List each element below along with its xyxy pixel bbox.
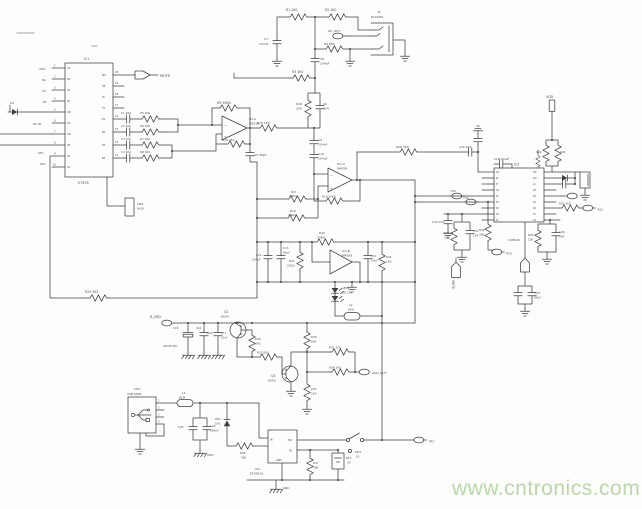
component-label: IN bbox=[496, 177, 499, 180]
component-label: + bbox=[330, 187, 333, 191]
component-label: 20K bbox=[296, 107, 303, 111]
component-label: 3 bbox=[54, 86, 56, 90]
resistor-r9 bbox=[218, 105, 238, 111]
component-label: D1 bbox=[10, 101, 14, 105]
component-label: R33 bbox=[311, 387, 317, 391]
component-label: 1 bbox=[158, 400, 160, 403]
component-label: C2 104 bbox=[121, 124, 131, 128]
net-flag-au-out bbox=[333, 33, 346, 39]
component-label: CP bbox=[67, 89, 71, 92]
cap-c18 bbox=[497, 160, 505, 168]
cap-top bbox=[474, 136, 482, 144]
component-label: C18 104uF bbox=[494, 157, 510, 161]
component-label: CS8645 bbox=[508, 238, 520, 242]
resistor-r16 bbox=[305, 98, 311, 118]
net-flag-left bbox=[564, 193, 577, 199]
component-label: C16 bbox=[196, 326, 201, 330]
ic1-body bbox=[65, 63, 113, 177]
resistor-r21 bbox=[297, 250, 303, 270]
resistor-r33 bbox=[304, 382, 310, 402]
resistor-r36 bbox=[234, 443, 254, 449]
component-label: R1 1K0 bbox=[286, 8, 297, 12]
component-label: C4 104 bbox=[121, 150, 131, 154]
component-label: IN bbox=[270, 439, 273, 442]
resistor-r20 bbox=[315, 239, 335, 245]
component-label: R26 bbox=[255, 337, 261, 341]
component-label: C10 bbox=[318, 152, 324, 156]
component-label: R20 bbox=[319, 231, 325, 235]
battery-bt1-icon bbox=[332, 453, 344, 469]
ground-icon bbox=[198, 352, 211, 359]
zener-zd1-icon bbox=[224, 420, 230, 427]
vdd-flag-icon bbox=[549, 100, 555, 112]
component-label: LED bbox=[38, 151, 43, 155]
component-label: 2 bbox=[54, 75, 56, 79]
component-label: ID bbox=[102, 96, 105, 99]
headphone-jack-icon bbox=[371, 23, 393, 55]
component-label: 100 bbox=[528, 238, 534, 242]
component-label: L2 bbox=[349, 303, 353, 307]
component-label: R30 bbox=[444, 231, 450, 235]
component-label: − bbox=[330, 174, 333, 178]
component-label: SW1 bbox=[355, 450, 362, 454]
component-label: R25 1K0 bbox=[559, 202, 571, 206]
component-label: R37 bbox=[313, 461, 319, 465]
resistor-r28 bbox=[398, 149, 418, 155]
component-label: IC3 bbox=[514, 163, 519, 167]
component-label: 104uF bbox=[318, 143, 328, 147]
component-label: KT bbox=[496, 195, 499, 198]
component-label: LN bbox=[496, 189, 499, 192]
cap-c5 bbox=[246, 150, 254, 158]
resistor-r23 bbox=[88, 295, 108, 301]
component-label: 7 bbox=[54, 130, 56, 134]
component-label: 60uF bbox=[283, 251, 290, 255]
component-label: GND bbox=[283, 486, 289, 490]
ground-up-icon bbox=[473, 126, 482, 134]
component-label: PS bbox=[496, 201, 499, 204]
component-label: 104uF bbox=[320, 62, 330, 66]
component-label: IN bbox=[43, 100, 46, 104]
component-label: C26 bbox=[559, 230, 565, 234]
cap-c25 bbox=[189, 424, 197, 432]
component-label: PX bbox=[496, 207, 499, 210]
component-label: D0 bbox=[533, 195, 537, 198]
mute-flag-icon bbox=[452, 262, 461, 278]
ground-icon bbox=[580, 192, 589, 200]
resistor-r31 bbox=[330, 349, 350, 355]
component-label: 15 bbox=[115, 127, 119, 131]
component-label: SW bbox=[533, 171, 537, 174]
component-label: C21 bbox=[473, 229, 479, 233]
component-label: IN bbox=[67, 100, 70, 103]
component-label: SW bbox=[533, 177, 537, 180]
component-label: C1 104 bbox=[121, 111, 131, 115]
ground-icon bbox=[270, 486, 283, 493]
component-label: VD bbox=[67, 67, 71, 70]
resistor-r32 bbox=[485, 222, 491, 242]
component-label: 600 bbox=[311, 340, 317, 344]
component-label: VDD bbox=[207, 453, 214, 457]
component-label: R10 2K2 bbox=[222, 138, 235, 142]
ground-icon bbox=[542, 256, 551, 264]
component-label: R5 1K0 bbox=[140, 111, 150, 115]
ic2-body bbox=[268, 430, 297, 463]
component-label: 19 bbox=[115, 81, 119, 85]
component-label: R24 bbox=[528, 233, 534, 237]
component-label: LD bbox=[67, 155, 70, 158]
mute-buffer-icon bbox=[135, 71, 150, 79]
component-label: MUTE bbox=[160, 74, 171, 78]
mid-bus-block bbox=[257, 239, 415, 440]
component-label: V02 bbox=[597, 208, 603, 212]
component-label: 2 bbox=[158, 407, 160, 410]
component-label: C8 bbox=[320, 57, 324, 61]
ground-icon bbox=[457, 254, 466, 262]
schematic-canvas: IC1E7505MUTE123456789102019181716151413V… bbox=[0, 0, 642, 509]
component-label: 3V bbox=[347, 461, 351, 465]
component-label: 17 bbox=[115, 103, 119, 107]
schematic-labels: IC1E7505MUTE123456789102019181716151413V… bbox=[10, 8, 603, 490]
component-label: 1K0 bbox=[536, 150, 542, 154]
resistor-r25 bbox=[560, 205, 580, 211]
component-label: AU_OUT bbox=[328, 29, 340, 33]
component-label: IC1 bbox=[84, 57, 89, 61]
component-label: R29 bbox=[311, 335, 317, 339]
component-label: C12 bbox=[256, 253, 262, 257]
component-label: ET4001A bbox=[250, 472, 264, 476]
component-label: AUD_OUT bbox=[372, 371, 387, 375]
component-label: B2 bbox=[102, 131, 106, 134]
component-label: R27 600 bbox=[257, 351, 269, 355]
component-label: R4 680 bbox=[324, 42, 335, 46]
component-label: R9 10KΩ bbox=[217, 101, 231, 105]
component-label: R36 bbox=[240, 451, 246, 455]
component-label: MUTE bbox=[451, 280, 455, 289]
component-label: C3 104 bbox=[121, 137, 131, 141]
ground-icon bbox=[194, 450, 207, 457]
net-flag-v02 bbox=[583, 205, 596, 211]
usb-icon bbox=[131, 409, 151, 422]
component-label: 60uF bbox=[534, 296, 541, 300]
component-label: C13 bbox=[283, 246, 289, 250]
component-label: R21 bbox=[289, 259, 295, 263]
component-label: 600 bbox=[348, 308, 354, 312]
component-label: M4558 bbox=[342, 254, 352, 258]
component-label: Y00 bbox=[450, 189, 456, 193]
component-label: Y01 bbox=[463, 196, 469, 200]
resistor-r1 bbox=[288, 14, 308, 20]
component-label: 4 bbox=[158, 421, 160, 424]
component-label: 6 bbox=[54, 119, 56, 123]
resistor-r15 bbox=[258, 125, 278, 131]
component-label: TS bbox=[102, 107, 105, 110]
component-label: TX bbox=[533, 213, 536, 216]
component-label: R2 1K0 bbox=[325, 8, 336, 12]
component-label: 4 bbox=[54, 97, 56, 101]
ground-icon bbox=[135, 446, 144, 454]
component-label: U2-A bbox=[249, 117, 257, 121]
component-label: 8050 bbox=[268, 379, 276, 383]
component-label: 104 bbox=[323, 107, 329, 111]
resistor-r24 bbox=[535, 228, 541, 248]
component-label: SL bbox=[496, 219, 499, 222]
component-label: DC bbox=[67, 122, 71, 125]
component-label: MU bbox=[102, 74, 106, 77]
resistor-r34 bbox=[330, 369, 350, 375]
component-label: R28 3K0 bbox=[396, 145, 409, 149]
inductor-l1-icon bbox=[177, 400, 193, 407]
ground-icon bbox=[182, 352, 195, 359]
component-label: BLM bbox=[179, 396, 186, 400]
transistor-section bbox=[162, 320, 415, 414]
component-label: VD bbox=[533, 189, 536, 192]
cap-c7 bbox=[273, 38, 281, 46]
cn2-body bbox=[125, 198, 134, 216]
component-label: IP bbox=[496, 183, 499, 186]
component-label: 16 bbox=[115, 114, 119, 118]
resistor-r2 bbox=[327, 14, 347, 20]
component-label: 13 bbox=[115, 153, 119, 157]
component-label: IC1-B bbox=[342, 249, 350, 253]
component-label: HP bbox=[102, 85, 106, 88]
watermark: www.cntronics.com bbox=[452, 477, 640, 501]
ic2-block bbox=[224, 403, 427, 493]
component-label: − bbox=[224, 124, 227, 128]
ground-icon bbox=[302, 406, 311, 414]
component-label: 8550 bbox=[221, 315, 229, 319]
net-flag-p20 bbox=[492, 249, 505, 255]
component-label: 2K0 bbox=[255, 342, 261, 346]
component-label: 104 bbox=[559, 235, 565, 239]
cap-c20 bbox=[444, 218, 452, 226]
component-label: VO bbox=[429, 440, 434, 444]
component-label: E7505 bbox=[78, 181, 89, 185]
diode-d1-icon bbox=[12, 109, 17, 115]
ic1-block bbox=[0, 63, 308, 301]
component-label: USB MDR bbox=[127, 392, 141, 396]
usb-block bbox=[128, 397, 259, 457]
net-flag-aud-out bbox=[356, 369, 369, 375]
component-label: 10uF bbox=[371, 259, 378, 263]
component-label: CP bbox=[42, 89, 46, 93]
component-label: 20 bbox=[115, 70, 119, 74]
resistor-r19 bbox=[324, 198, 344, 204]
cap-c27a bbox=[514, 290, 522, 298]
component-label: LX bbox=[533, 183, 536, 186]
component-label: 1K0 bbox=[311, 392, 317, 396]
component-label: R32 bbox=[479, 228, 485, 232]
component-label: 10uF bbox=[207, 331, 214, 335]
b-flag-icon bbox=[521, 258, 530, 272]
resistor-r30 bbox=[451, 226, 457, 246]
ic3-block bbox=[357, 100, 596, 316]
component-label: 30KΩ bbox=[288, 213, 296, 217]
component-label: R6 1K0 bbox=[140, 124, 150, 128]
component-label: SW bbox=[288, 439, 293, 442]
component-label: C7 bbox=[264, 37, 268, 41]
component-label: LED bbox=[40, 162, 45, 166]
component-label: 5V1 bbox=[215, 422, 221, 426]
junction-dots bbox=[171, 16, 576, 481]
component-label: NC bbox=[42, 78, 46, 82]
component-label: B1 bbox=[102, 118, 106, 121]
resistor-r3 bbox=[291, 75, 311, 81]
component-label: RX bbox=[533, 207, 537, 210]
component-label: 1K0 bbox=[386, 260, 392, 264]
component-label: DC IN bbox=[33, 122, 41, 126]
component-label: B3 bbox=[102, 144, 106, 147]
component-label: AD bbox=[496, 171, 499, 174]
component-label: R3 4K0 bbox=[292, 70, 303, 74]
component-label: IC1-A bbox=[337, 162, 346, 166]
component-label: C20 104 bbox=[432, 220, 444, 224]
resistor-r29 bbox=[304, 330, 310, 350]
cap-c12 bbox=[264, 253, 272, 261]
resistor-r4 bbox=[324, 46, 344, 52]
component-label: LD bbox=[67, 166, 70, 169]
ground-icon bbox=[272, 58, 281, 66]
component-label: VR bbox=[67, 144, 71, 147]
component-label: ZD1 bbox=[215, 417, 221, 421]
ground-icon bbox=[400, 53, 409, 61]
resistor-r22 bbox=[379, 252, 385, 272]
component-label: VS bbox=[533, 219, 536, 222]
component-label: 1 bbox=[54, 64, 56, 68]
cap-c10 bbox=[310, 152, 318, 160]
component-label: LED1 bbox=[342, 286, 350, 290]
component-label: R31 350 bbox=[329, 346, 341, 350]
component-label: 9 bbox=[54, 152, 56, 156]
component-label: GN bbox=[67, 133, 71, 136]
component-label: 104uF bbox=[318, 157, 328, 161]
component-label: PJ-302M bbox=[371, 15, 383, 19]
cap-c8 bbox=[311, 56, 319, 64]
component-label: 1K0 bbox=[560, 150, 566, 154]
component-label: 22KΩ bbox=[287, 264, 295, 268]
component-label: 104uF bbox=[259, 42, 269, 46]
component-label: K1 bbox=[356, 455, 360, 459]
component-label: L1 bbox=[182, 391, 186, 395]
component-label: R19 10KΩ bbox=[322, 195, 337, 199]
component-label: VDD bbox=[39, 67, 45, 71]
component-label: C6 bbox=[323, 102, 327, 106]
output-network bbox=[234, 14, 410, 93]
component-label: 20KΩ bbox=[289, 194, 297, 198]
component-label: C19 104 bbox=[459, 145, 471, 149]
component-label: 10 bbox=[53, 163, 57, 167]
component-label: C25 bbox=[178, 425, 184, 429]
ground-icon bbox=[212, 352, 225, 359]
ground-icon bbox=[286, 388, 295, 396]
component-label: 450 bbox=[241, 456, 247, 460]
ground-icon bbox=[345, 58, 354, 66]
component-label: 104uF bbox=[252, 258, 261, 262]
cap-c19 bbox=[466, 148, 474, 156]
component-label: R16 bbox=[296, 102, 302, 106]
component-label: M4558 bbox=[337, 167, 347, 171]
ground-icon bbox=[520, 308, 529, 316]
component-label: C17 bbox=[221, 331, 226, 335]
component-label: C15 bbox=[173, 326, 179, 330]
component-label: R34 1K0 bbox=[329, 366, 341, 370]
component-label: R15 1K0 bbox=[257, 121, 270, 125]
component-label: GND bbox=[276, 459, 282, 462]
component-label: 104 bbox=[473, 234, 479, 238]
component-label: C9 bbox=[318, 138, 322, 142]
component-label: FB bbox=[289, 450, 292, 453]
component-label: J1 bbox=[377, 10, 381, 14]
component-label: 100 bbox=[444, 236, 450, 240]
component-label: 24KΩ bbox=[317, 236, 326, 240]
screenshot-root: IC1E7505MUTE123456789102019181716151413V… bbox=[0, 0, 642, 509]
net-flag-vo bbox=[414, 437, 427, 443]
component-label: R23 3K2 bbox=[85, 290, 98, 294]
resistor-top bbox=[536, 154, 540, 168]
component-label: 8 bbox=[54, 141, 56, 145]
component-label: LD 5/8 bbox=[342, 291, 352, 295]
component-label: R7 1K0 bbox=[140, 137, 150, 141]
component-label: R8 1K0 bbox=[140, 150, 150, 154]
component-label: BT1 bbox=[346, 456, 352, 460]
component-label: D1 bbox=[533, 201, 537, 204]
component-label: C27 bbox=[535, 291, 541, 295]
component-label: 5 bbox=[54, 108, 56, 112]
component-label: 300 bbox=[313, 466, 319, 470]
component-label: RS bbox=[496, 213, 500, 216]
component-label: 104uF bbox=[210, 429, 219, 433]
jack2-icon bbox=[580, 172, 590, 188]
component-label: 18 bbox=[115, 92, 119, 96]
component-label: 3 bbox=[158, 414, 160, 417]
component-label: B4 bbox=[102, 157, 106, 160]
component-label: Q1 bbox=[224, 310, 229, 314]
component-label: CN1 bbox=[134, 387, 140, 391]
component-label: CN2 bbox=[137, 202, 143, 206]
cap-c15 bbox=[183, 330, 193, 340]
component-label: 10uF bbox=[221, 336, 228, 340]
component-label: C5 43pF bbox=[254, 153, 267, 157]
component-label: C11 bbox=[371, 254, 377, 258]
component-label: B_VDD bbox=[150, 315, 161, 319]
scan-artifacts bbox=[17, 33, 97, 46]
component-label: IC2 bbox=[255, 467, 260, 471]
component-label: P20 bbox=[506, 252, 512, 256]
component-label: NC bbox=[67, 78, 71, 81]
component-label: W20 bbox=[137, 207, 144, 211]
component-label: 14 bbox=[115, 140, 119, 144]
component-label: VDD bbox=[546, 95, 554, 99]
component-label: 220UF/16V bbox=[163, 344, 178, 348]
component-label: 300 bbox=[479, 233, 485, 237]
component-label: R22 bbox=[386, 255, 392, 259]
cap-c9 bbox=[310, 138, 318, 146]
inductor-l2-icon bbox=[344, 313, 360, 320]
component-label: Q2 bbox=[271, 374, 276, 378]
resistor-r27 bbox=[258, 354, 278, 360]
component-label: UN bbox=[67, 111, 71, 114]
